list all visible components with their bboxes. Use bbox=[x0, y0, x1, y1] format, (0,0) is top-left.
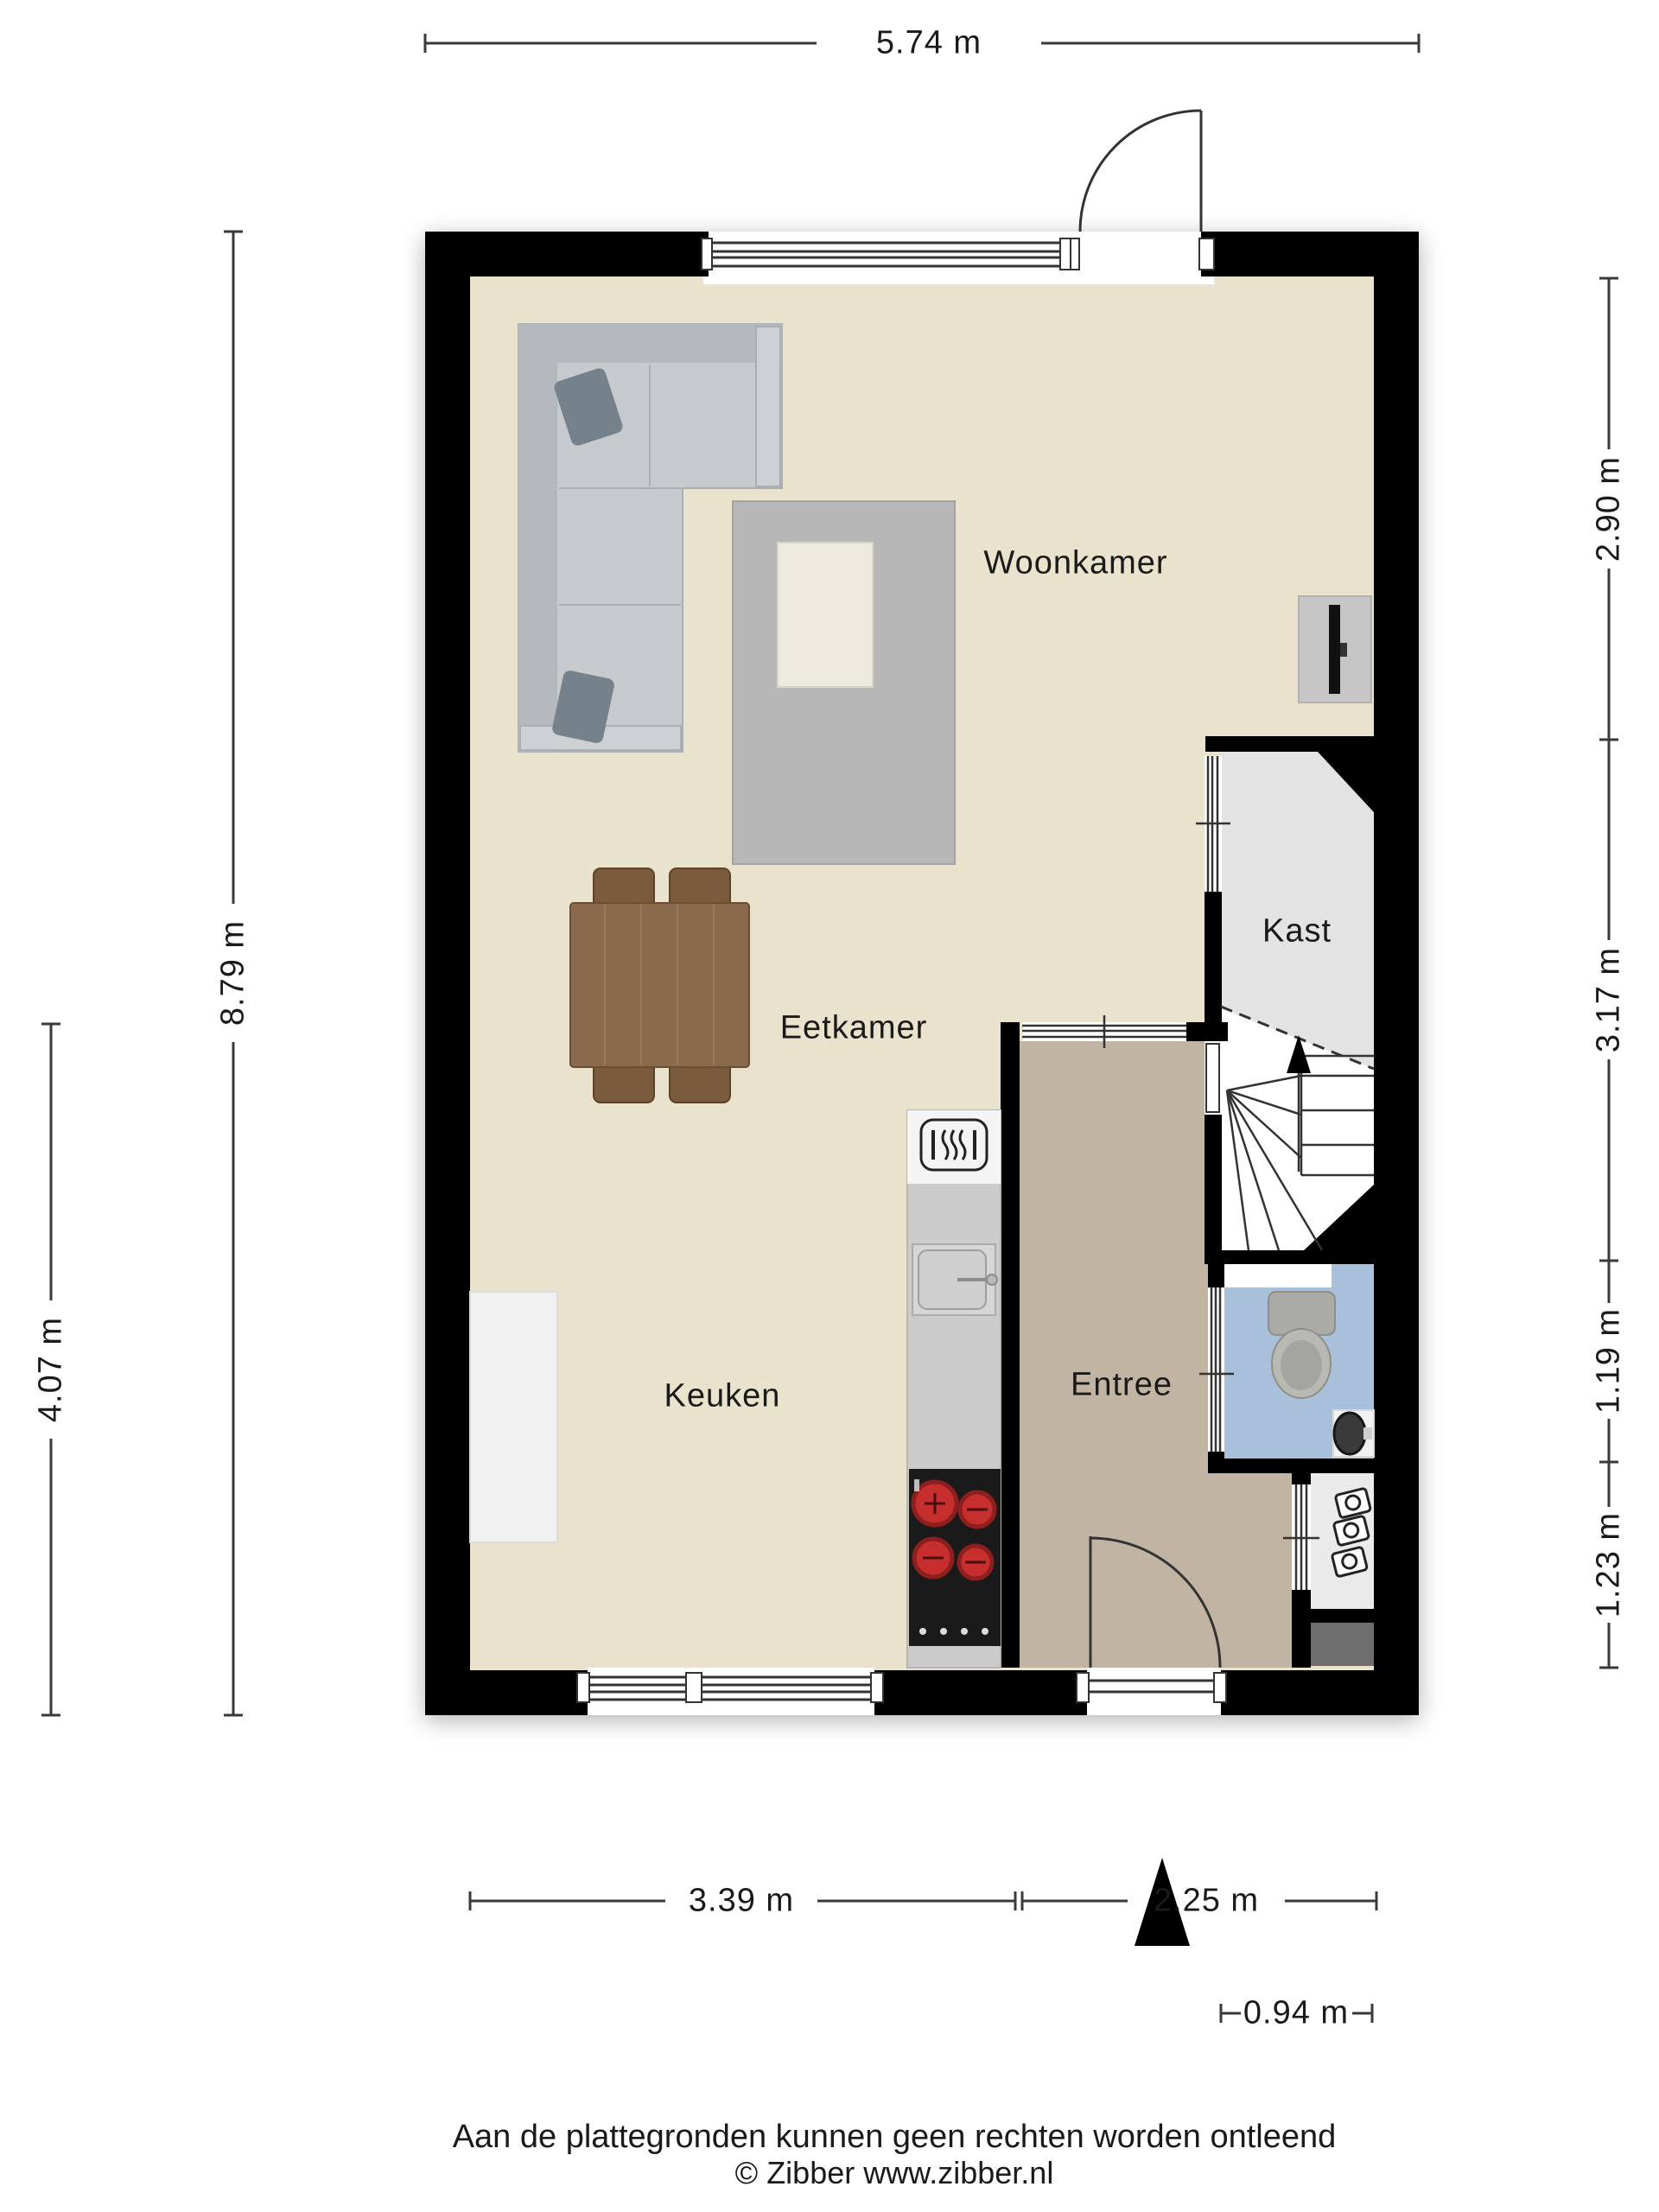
door-leaf bbox=[1206, 1044, 1219, 1112]
dim-label-bottom-2: 2.25 m bbox=[1154, 1883, 1259, 1920]
kitchen-worktop-left bbox=[470, 1292, 557, 1542]
room-label-kast: Kast bbox=[1262, 913, 1332, 950]
dining-set bbox=[570, 868, 749, 1103]
meter-symbols bbox=[1332, 1488, 1370, 1577]
dim-label-bottom-1: 3.39 m bbox=[689, 1883, 794, 1920]
kitchen-sink bbox=[912, 1244, 997, 1315]
tv-cabinet bbox=[1299, 596, 1371, 702]
stairs-hall-door bbox=[1205, 1041, 1222, 1115]
bottom-window bbox=[577, 1668, 883, 1715]
room-label-woonkamer: Woonkamer bbox=[983, 545, 1167, 582]
meter-block bbox=[1311, 1623, 1374, 1666]
floorplan-page: Woonkamer Kast Eetkamer Keuken Entree 5.… bbox=[0, 0, 1659, 2212]
dim-label-left-2: 4.07 m bbox=[33, 1317, 70, 1422]
dim-label-left-1: 8.79 m bbox=[215, 920, 252, 1026]
footer-copyright: © Zibber www.zibber.nl bbox=[735, 2155, 1054, 2191]
room-label-eetkamer: Eetkamer bbox=[780, 1010, 928, 1047]
top-entrance-door bbox=[1071, 111, 1214, 276]
dim-label-right-3: 1.19 m bbox=[1591, 1308, 1628, 1414]
footer-disclaimer: Aan de plattegronden kunnen geen rechten… bbox=[453, 2119, 1337, 2156]
bathroom-sink bbox=[1333, 1410, 1374, 1457]
dim-label-right-1: 2.90 m bbox=[1591, 456, 1628, 562]
bathroom-door-opening bbox=[1224, 1264, 1332, 1287]
floorplan-drawing bbox=[0, 0, 1659, 2212]
stove bbox=[909, 1469, 1001, 1646]
room-label-keuken: Keuken bbox=[664, 1378, 781, 1415]
room-label-entree: Entree bbox=[1071, 1367, 1173, 1404]
dining-table bbox=[570, 903, 749, 1067]
dim-label-bottom-sub: 0.94 m bbox=[1243, 1995, 1349, 2032]
kitchen-counter bbox=[907, 1110, 1001, 1668]
dim-label-right-2: 3.17 m bbox=[1591, 947, 1628, 1052]
coffee-table bbox=[778, 543, 873, 687]
dim-label-top: 5.74 m bbox=[876, 25, 982, 62]
tv-screen bbox=[1329, 605, 1340, 694]
door-swing-icon bbox=[1080, 111, 1201, 232]
front-door-threshold bbox=[1077, 1668, 1226, 1715]
dim-label-right-4: 1.23 m bbox=[1591, 1512, 1628, 1618]
toilet bbox=[1268, 1292, 1335, 1398]
